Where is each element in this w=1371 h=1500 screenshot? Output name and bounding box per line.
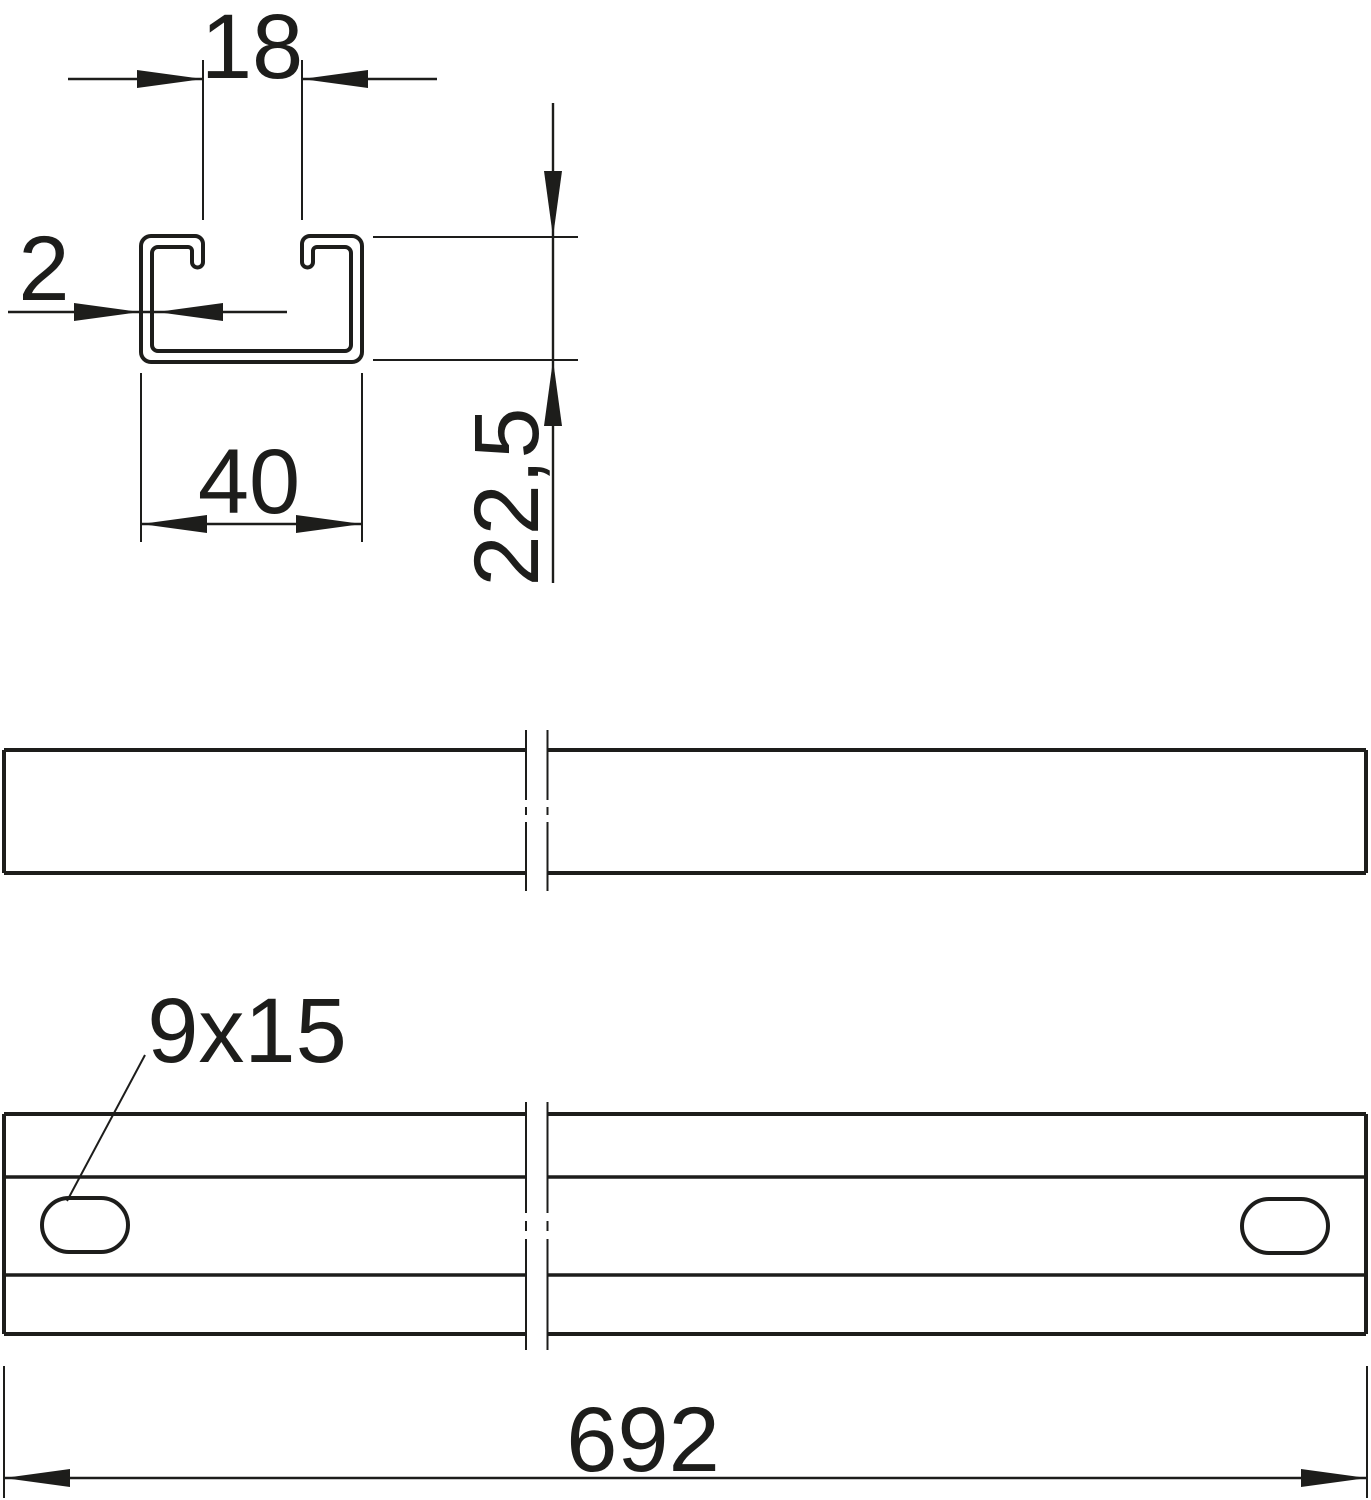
dimension-rail-length: 692	[4, 1366, 1367, 1498]
technical-drawing: 18 2 40	[0, 0, 1371, 1500]
dimension-material-thickness: 2	[8, 218, 287, 321]
side-view	[4, 730, 1366, 891]
slot-left	[42, 1198, 128, 1252]
arrowhead-right-icon	[137, 70, 203, 88]
arrowhead-left-icon	[4, 1469, 70, 1487]
dim-label-profile-height: 22,5	[456, 407, 558, 586]
dim-label-slot-size: 9x15	[147, 980, 347, 1082]
plan-view: 9x15	[4, 980, 1366, 1353]
dim-label-profile-width: 40	[198, 431, 300, 533]
dim-label-material-thickness: 2	[18, 218, 69, 320]
cross-section-view: 18 2 40	[8, 0, 578, 587]
slot-callout: 9x15	[67, 980, 347, 1201]
plan-view-outline	[4, 1114, 1366, 1334]
arrowhead-left-icon	[157, 303, 223, 321]
arrowhead-right-icon	[296, 515, 362, 533]
dimension-profile-width: 40	[141, 373, 362, 542]
arrowhead-down-icon	[544, 171, 562, 237]
dimension-profile-height: 22,5	[373, 103, 578, 587]
leader-line	[67, 1055, 145, 1201]
slot-right	[1242, 1199, 1328, 1253]
arrowhead-right-icon	[74, 303, 140, 321]
side-view-outline	[4, 750, 1366, 873]
arrowhead-left-icon	[302, 70, 368, 88]
dim-label-opening-width: 18	[201, 0, 303, 98]
arrowhead-right-icon	[1301, 1469, 1367, 1487]
technical-drawing-page: 18 2 40	[0, 0, 1371, 1500]
profile-outline	[141, 236, 362, 362]
dim-label-rail-length: 692	[566, 1389, 720, 1491]
dimension-opening-width: 18	[68, 0, 437, 220]
